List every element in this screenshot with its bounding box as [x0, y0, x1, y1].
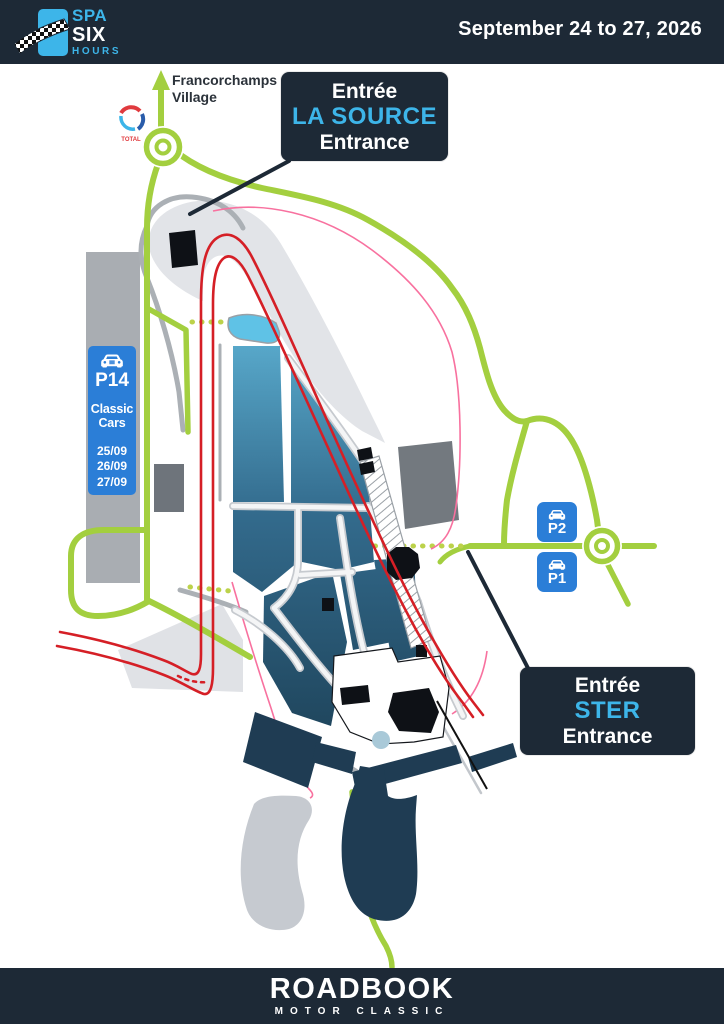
la-source-name: LA SOURCE	[292, 105, 437, 129]
ster-entrance-label: Entrance	[563, 726, 653, 747]
pond	[372, 731, 390, 749]
fuel-station-label: TOTAL	[121, 137, 141, 143]
p1-code: P1	[548, 571, 566, 586]
fuel-station-logo: TOTAL	[119, 107, 143, 143]
ster-entrance-box: Entrée STER Entrance	[520, 667, 695, 755]
p14-category-line2: Cars	[98, 416, 125, 430]
village-label-line2: Village	[172, 89, 217, 105]
p14-date-1: 25/09	[97, 444, 127, 458]
car-icon	[547, 559, 567, 570]
building-gray-small	[154, 464, 184, 512]
parking-p14-sign: P14 Classic Cars 25/09 26/09 27/09	[88, 346, 136, 495]
roadbook-brand: ROADBOOK	[270, 975, 454, 1004]
la-source-entree-label: Entrée	[332, 81, 397, 102]
logo-word-six: SIX	[72, 25, 121, 45]
p14-date-2: 26/09	[97, 459, 127, 473]
roadbook-access-map-page: { "header": { "logo": { "word1": "SPA", …	[0, 0, 724, 1024]
logo-wordmark: SPA SIX HOURS	[72, 7, 121, 57]
ster-name: STER	[574, 699, 640, 723]
village-direction-arrow	[152, 70, 170, 90]
village-label-line1: Francorchamps	[172, 72, 277, 88]
ster-callout-line	[468, 552, 530, 672]
p2-code: P2	[548, 521, 566, 536]
grandstand-building	[398, 441, 459, 529]
classic-car-icon	[99, 353, 125, 368]
pit-complex	[332, 648, 449, 749]
parking-p1-sign: P1	[537, 552, 577, 592]
la-source-entrance-label: Entrance	[320, 132, 410, 153]
car-icon	[547, 509, 567, 520]
la-source-entrance-box: Entrée LA SOURCE Entrance	[281, 72, 448, 161]
logo-word-hours: HOURS	[72, 47, 121, 57]
logo-word-spa: SPA	[72, 7, 121, 24]
parking-p2-sign: P2	[537, 502, 577, 542]
roundabout-ster	[582, 526, 622, 566]
p14-code: P14	[95, 371, 129, 390]
roadbook-tagline: MOTOR CLASSIC	[275, 1007, 450, 1017]
ster-entree-label: Entrée	[575, 675, 640, 696]
header-band: SPA SIX HOURS September 24 to 27, 2026	[0, 0, 724, 64]
p14-category-line1: Classic	[91, 402, 133, 416]
village-label: Francorchamps Village	[172, 72, 292, 105]
event-date-range: September 24 to 27, 2026	[458, 18, 702, 41]
footer-band: ROADBOOK MOTOR CLASSIC	[0, 968, 724, 1024]
p14-date-3: 27/09	[97, 475, 127, 489]
roundabout-la-source	[142, 126, 184, 168]
